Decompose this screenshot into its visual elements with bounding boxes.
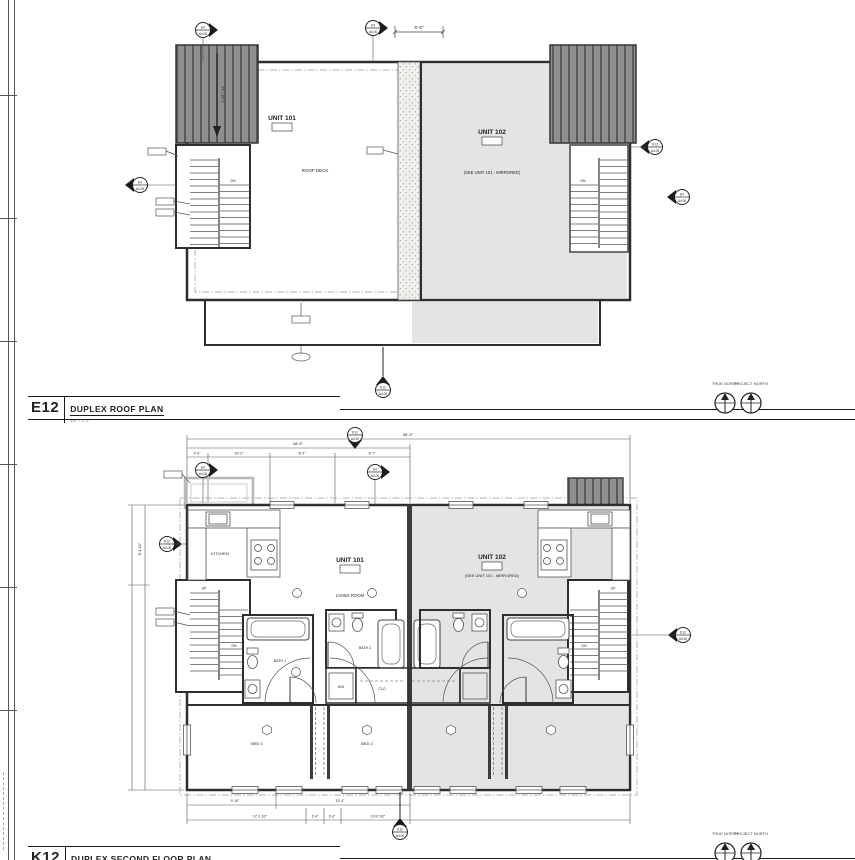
stair-left: UP DN bbox=[176, 580, 250, 692]
toilet bbox=[248, 656, 258, 669]
bed1-label: BED 1 bbox=[251, 741, 263, 746]
roof-panel-right bbox=[550, 45, 636, 143]
section-marker-ref: E12 bbox=[652, 143, 658, 147]
roof-lower-parapet bbox=[205, 300, 600, 345]
stair-right: UP DN bbox=[568, 580, 628, 692]
project-north-icon bbox=[740, 392, 762, 414]
section-marker: E4A4.00 bbox=[366, 21, 389, 36]
dim-overall: 56'-0" bbox=[403, 432, 414, 437]
section-marker-ref: K12 bbox=[352, 431, 358, 435]
section-marker-ref: E12 bbox=[380, 386, 386, 390]
section-marker-ref: E4 bbox=[371, 24, 375, 28]
bed2-label: BED 2 bbox=[361, 741, 373, 746]
laundry-closet-101: W/D CLO bbox=[326, 668, 408, 703]
section-marker-sheet: A4.00 bbox=[679, 637, 688, 641]
living-room-label: LIVING ROOM bbox=[336, 593, 364, 598]
section-marker: E4A4.00 bbox=[125, 178, 148, 193]
stair-up-label: UP bbox=[611, 587, 616, 591]
drawing-title: DUPLEX ROOF PLAN bbox=[70, 404, 163, 416]
roof-plan-drawing: DN DN 1 1/2" / 12" UNIT 101 ROOF DECK UN… bbox=[120, 8, 740, 398]
bottom-dimensions: 9'-10" 13'-0" 17'-1 1/2" 2'-4" 3'-0" 10'… bbox=[187, 793, 630, 824]
dim-half: 28'-0" bbox=[293, 441, 304, 446]
dim: 13'-0" bbox=[336, 799, 345, 803]
grid-tick bbox=[0, 710, 17, 711]
section-marker: E4A4.00 bbox=[196, 23, 219, 38]
party-wall bbox=[398, 62, 421, 300]
roof-stair-left: DN bbox=[176, 145, 250, 248]
clo-label: CLO bbox=[379, 687, 386, 691]
dimension-text: 6'-0" bbox=[415, 25, 424, 30]
unit-102-mirror-note: (SEE UNIT 101 - MIRRORED) bbox=[465, 573, 520, 578]
dim: 10'-0 1/2" bbox=[371, 815, 386, 819]
drawing-title: DUPLEX SECOND FLOOR PLAN bbox=[71, 854, 211, 860]
dim-seg: 4'-2" bbox=[194, 452, 202, 456]
grid-tick bbox=[0, 218, 17, 219]
cooktop bbox=[541, 540, 567, 570]
section-marker-sheet: A4.00 bbox=[651, 149, 660, 153]
wd-label: W/D bbox=[338, 685, 345, 689]
titleblock-rule bbox=[28, 419, 855, 420]
dim-left: 8'-4 1/2" bbox=[138, 542, 142, 555]
unit-101-label: UNIT 101 bbox=[336, 557, 364, 564]
unit-101-area-tag bbox=[272, 123, 292, 131]
grid-tick bbox=[0, 464, 17, 465]
unit-101-area-tag bbox=[340, 565, 360, 573]
stair-dn-label: DN bbox=[582, 644, 587, 648]
roof-deck-label: ROOF DECK bbox=[302, 168, 329, 173]
true-north-icon bbox=[714, 392, 736, 414]
grid-tick bbox=[0, 95, 17, 96]
unit-102-mirror-note: (SEE UNIT 101 - MIRRORED) bbox=[464, 170, 521, 175]
section-marker-sheet: A4.00 bbox=[136, 187, 145, 191]
drawing-sheet: DN DN 1 1/2" / 12" UNIT 101 ROOF DECK UN… bbox=[0, 0, 855, 860]
dim-seg: 10'-2" bbox=[235, 452, 244, 456]
stair-dn-label: DN bbox=[230, 179, 236, 183]
dim: 3'-0" bbox=[329, 815, 337, 819]
dim: 9'-10" bbox=[231, 799, 240, 803]
grid-tick bbox=[0, 341, 17, 342]
stair-up-label: UP bbox=[202, 587, 207, 591]
section-marker: E4A4.00 bbox=[196, 463, 219, 478]
roof-stair-right: DN bbox=[570, 145, 628, 252]
bath1-label: BATH 1 bbox=[274, 659, 286, 663]
unit-101-label: UNIT 101 bbox=[268, 115, 296, 122]
section-marker-sheet: A4.00 bbox=[369, 30, 378, 34]
section-marker-sheet: A4.00 bbox=[678, 199, 687, 203]
sink bbox=[248, 685, 257, 694]
section-marker-ref: E4 bbox=[138, 181, 142, 185]
roof-panel-left: 1 1/2" / 12" bbox=[176, 45, 258, 143]
section-marker: E4A4.00 bbox=[667, 190, 690, 205]
section-marker-ref: E12 bbox=[680, 631, 686, 635]
section-marker-sheet: A4.00 bbox=[163, 546, 172, 550]
sink bbox=[332, 618, 341, 627]
second-floor-plan-drawing: 56'-0" 28'-0" 4'-2" 10'-2" 8'-2" 8'-7" 8… bbox=[120, 425, 740, 845]
deck-below-outline bbox=[185, 478, 253, 508]
dim-seg: 8'-7" bbox=[369, 452, 377, 456]
project-north-icon bbox=[740, 842, 762, 860]
kitchen-label: KITCHEN bbox=[211, 551, 229, 556]
grid-tick bbox=[0, 587, 17, 588]
detail-number: K12 bbox=[28, 847, 66, 860]
section-marker-ref: E4 bbox=[201, 26, 205, 30]
roof-dimension: 6'-0" bbox=[393, 25, 445, 38]
section-marker-ref: K12 bbox=[397, 828, 403, 832]
true-north-icon bbox=[714, 842, 736, 860]
unit-102-label: UNIT 102 bbox=[478, 554, 506, 561]
section-marker-ref: K12 bbox=[164, 540, 170, 544]
dim-seg: 8'-2" bbox=[299, 452, 307, 456]
titleblock-rule bbox=[340, 858, 855, 859]
titleblock-rule bbox=[340, 409, 855, 410]
section-marker-ref: E4 bbox=[373, 468, 377, 472]
section-marker: E12A4.00 bbox=[376, 376, 391, 398]
section-marker-sheet: A4.00 bbox=[351, 437, 360, 441]
section-marker: E4A4.00 bbox=[368, 465, 391, 480]
section-marker-sheet: A4.00 bbox=[199, 32, 208, 36]
section-marker-sheet: A4.00 bbox=[199, 472, 208, 476]
stair-dn-label: DN bbox=[580, 179, 586, 183]
unit-102-area-tag bbox=[482, 562, 502, 570]
project-north-label: PROJECT NORTH bbox=[734, 832, 768, 837]
toilet bbox=[353, 619, 363, 632]
party-wall bbox=[407, 505, 412, 790]
section-marker-ref: E4 bbox=[201, 466, 205, 470]
section-marker-ref: E4 bbox=[680, 193, 684, 197]
roof-slope-label: 1 1/2" / 12" bbox=[221, 85, 225, 103]
dim: 2'-4" bbox=[312, 815, 320, 819]
project-north-label: PROJECT NORTH bbox=[734, 382, 768, 387]
dim: 17'-1 1/2" bbox=[253, 815, 268, 819]
bath1-101: BATH 1 bbox=[243, 615, 316, 703]
cooktop bbox=[251, 540, 277, 570]
unit-102-label: UNIT 102 bbox=[478, 129, 506, 136]
stair-dn-label: DN bbox=[232, 644, 237, 648]
bath2-label: BATH 2 bbox=[359, 646, 371, 650]
sheet-border-line bbox=[8, 0, 15, 860]
sheet-margin-microtext bbox=[3, 772, 5, 850]
unit-102-area-tag bbox=[482, 137, 502, 145]
section-marker-sheet: A4.00 bbox=[396, 834, 405, 838]
section-marker: K12A4.00 bbox=[348, 428, 363, 450]
section-marker-sheet: A4.00 bbox=[371, 474, 380, 478]
